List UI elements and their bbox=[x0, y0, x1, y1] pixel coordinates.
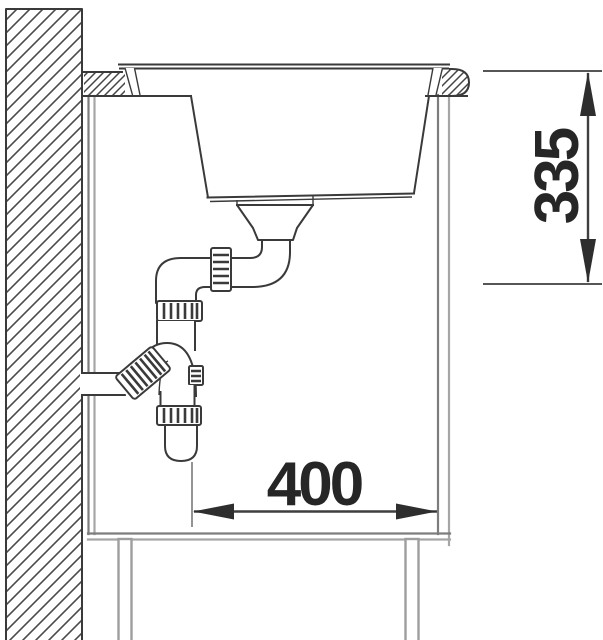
sink bbox=[84, 63, 467, 202]
installation-drawing: 400 335 bbox=[0, 0, 603, 640]
drain-trap-assembly bbox=[80, 196, 313, 461]
access-fitting bbox=[189, 366, 203, 385]
countertop-left-hatch bbox=[84, 72, 125, 96]
dim-width-arrow-right bbox=[396, 504, 437, 520]
trap-lower-pipe-fill bbox=[161, 385, 194, 407]
compression-nut-horizontal bbox=[211, 248, 231, 291]
dim-width-label: 400 bbox=[267, 450, 362, 519]
bowl-wall-right bbox=[414, 96, 429, 193]
countertop bbox=[84, 69, 469, 96]
dimension-height: 335 bbox=[483, 71, 602, 284]
strainer-funnel bbox=[237, 205, 313, 240]
coupling-nut-lower bbox=[157, 406, 201, 425]
cabinet-leg-left bbox=[119, 539, 132, 640]
dimension-width: 400 bbox=[192, 450, 437, 527]
bowl-bottom-outer bbox=[208, 194, 415, 198]
dim-height-arrow-top bbox=[580, 72, 596, 116]
dim-height-label: 335 bbox=[523, 128, 592, 224]
drawing-canvas: 400 335 bbox=[0, 0, 603, 640]
trap-stub bbox=[165, 425, 197, 461]
wall-section bbox=[6, 9, 82, 640]
bowl-wall-left bbox=[191, 96, 208, 198]
wall-hatching bbox=[6, 9, 82, 640]
dim-height-arrow-bottom bbox=[580, 239, 596, 283]
coupling-nut-upper bbox=[157, 301, 202, 321]
cabinet-leg-right bbox=[406, 539, 419, 640]
dim-width-arrow-left bbox=[193, 504, 234, 520]
